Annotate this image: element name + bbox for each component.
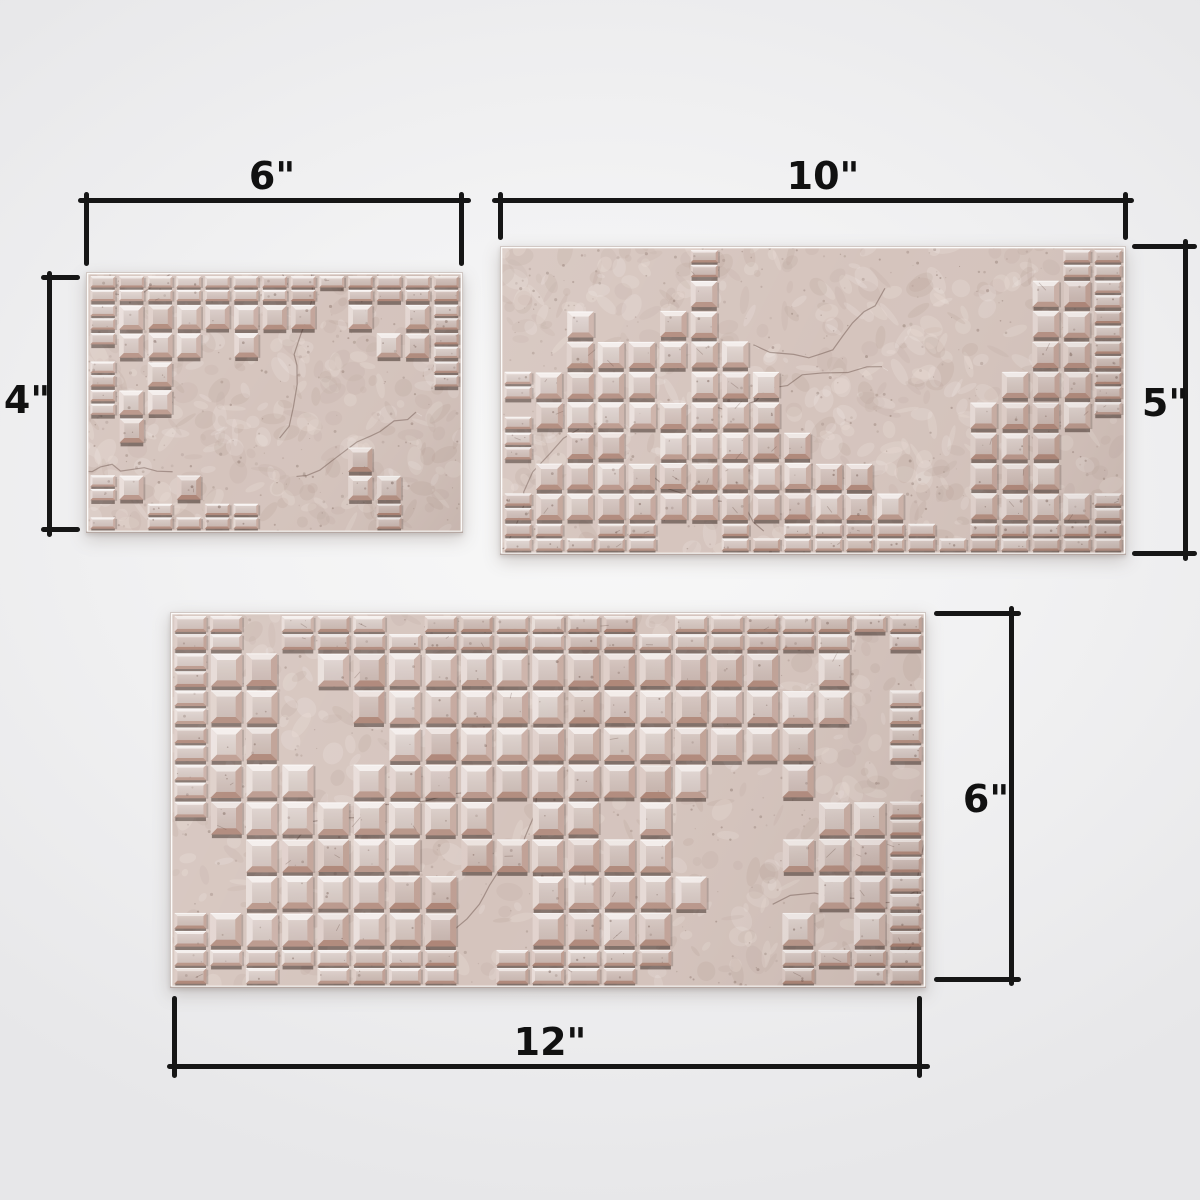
dimension-label-5in: 5": [1085, 384, 1200, 422]
dimension-tick-start: [498, 192, 503, 240]
tile-size-comparison-diagram: 6" 4" 10" 5" 6" 12": [0, 0, 1200, 1200]
dimension-label-12in: 12": [470, 1023, 630, 1061]
dimension-line: [167, 1064, 930, 1069]
dimension-tick-end: [41, 527, 80, 532]
dimension-label-6in: 6": [192, 157, 352, 195]
dimension-tick-end: [459, 192, 464, 266]
dimension-tick-start: [1132, 244, 1197, 249]
dimension-tick-start: [172, 996, 177, 1078]
dimension-label-6in-height: 6": [906, 780, 1066, 818]
dimension-tick-start: [84, 192, 89, 266]
dimension-tick-end: [917, 996, 922, 1078]
dimension-line: [78, 198, 471, 203]
dimension-tick-end: [934, 977, 1021, 982]
dimension-tick-end: [1123, 192, 1128, 240]
dimension-tick-start: [934, 611, 1021, 616]
tile-panel-12x6-image: [170, 612, 926, 988]
tile-panel-6x4-image: [86, 272, 463, 533]
dimension-label-10in: 10": [743, 157, 903, 195]
dimension-tick-end: [1132, 551, 1197, 556]
dimension-label-4in: 4": [0, 381, 107, 419]
dimension-line: [492, 198, 1134, 203]
dimension-tick-start: [41, 275, 80, 280]
tile-panel-10x5-image: [500, 246, 1126, 555]
